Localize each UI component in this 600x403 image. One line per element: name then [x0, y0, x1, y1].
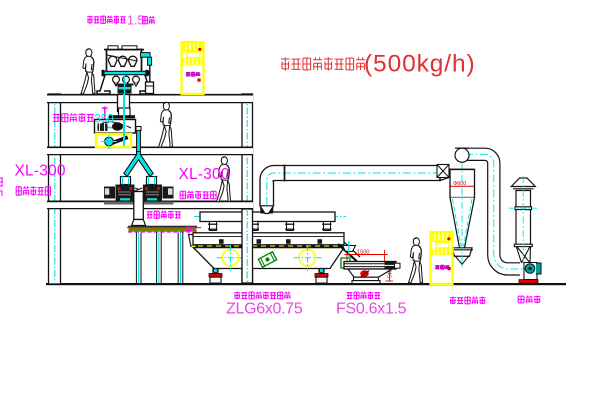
svg-text:(500kg/h): (500kg/h)	[364, 51, 476, 78]
svg-text:1500: 1500	[357, 250, 369, 256]
svg-text:Φ600: Φ600	[453, 181, 466, 187]
svg-text:350: 350	[95, 114, 114, 126]
svg-text:XL-300: XL-300	[15, 163, 66, 180]
svg-text:XL-300: XL-300	[179, 166, 230, 183]
svg-text:ZLG6x0.75: ZLG6x0.75	[226, 301, 303, 318]
svg-text:1.5: 1.5	[127, 14, 144, 28]
svg-text:FS0.6x1.5: FS0.6x1.5	[336, 301, 407, 318]
